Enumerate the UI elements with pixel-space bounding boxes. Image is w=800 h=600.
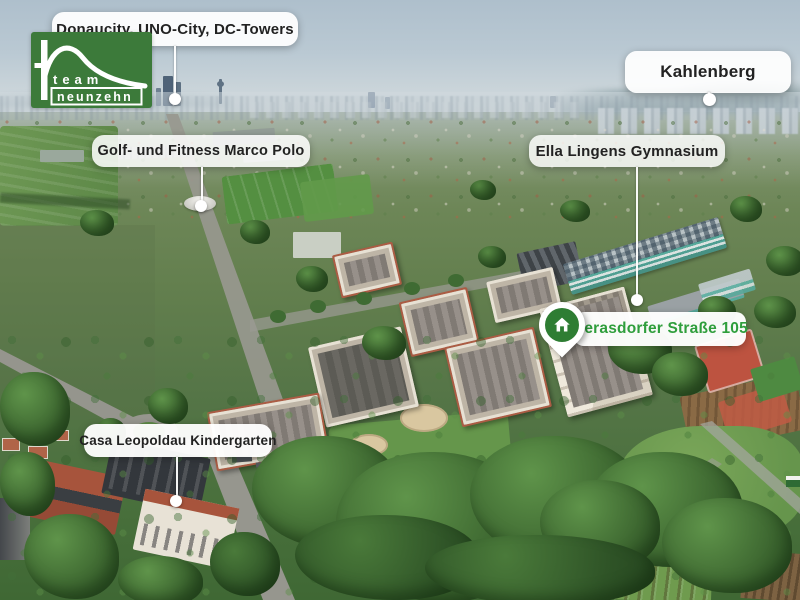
marker-line — [636, 167, 638, 295]
street-tree — [356, 292, 372, 305]
address-label: Gerasdorfer Straße 105 — [574, 312, 746, 346]
address-pin — [534, 300, 592, 366]
logo-graphic: team neunzehn — [31, 32, 152, 108]
callout-label: Casa Leopoldau Kindergarten — [84, 424, 272, 457]
marker-dot — [170, 495, 182, 507]
tree — [0, 452, 55, 516]
aerial-photo: Donaucity, UNO-City, DC-Towers Kahlenber… — [0, 0, 800, 600]
street-tree — [310, 300, 326, 313]
tree — [296, 266, 328, 292]
tree — [148, 388, 188, 424]
park-trees — [425, 535, 655, 600]
tree — [210, 532, 280, 596]
marker-dot — [703, 93, 716, 106]
logo-text-neunzehn: neunzehn — [57, 90, 133, 104]
tree — [470, 180, 496, 200]
marker-line — [201, 167, 203, 201]
marker-dot — [631, 294, 643, 306]
street-tree — [404, 282, 420, 295]
tree — [478, 246, 506, 268]
garden-hut — [786, 476, 800, 487]
tree — [118, 556, 203, 600]
street-tree — [448, 274, 464, 287]
tree — [730, 196, 762, 222]
marker-line — [174, 46, 176, 94]
tree — [754, 296, 796, 328]
marker-dot — [169, 93, 181, 105]
callout-label: Ella Lingens Gymnasium — [529, 135, 725, 167]
tree — [0, 372, 70, 446]
tree — [80, 210, 114, 236]
tree — [362, 326, 406, 360]
marker-line — [176, 457, 178, 496]
marker-dot — [195, 200, 207, 212]
logo-text-team: team — [53, 72, 103, 87]
distant-building — [40, 150, 84, 162]
pin-circle — [545, 308, 579, 342]
tree — [652, 352, 708, 396]
street-tree — [270, 310, 286, 323]
sports-field — [300, 174, 374, 222]
callout-label: Kahlenberg — [625, 51, 791, 93]
team-neunzehn-logo: team neunzehn — [31, 32, 152, 108]
tree — [240, 220, 270, 244]
house-icon — [552, 315, 572, 335]
callout-label: Golf- und Fitness Marco Polo — [92, 135, 310, 167]
tree — [560, 200, 590, 222]
